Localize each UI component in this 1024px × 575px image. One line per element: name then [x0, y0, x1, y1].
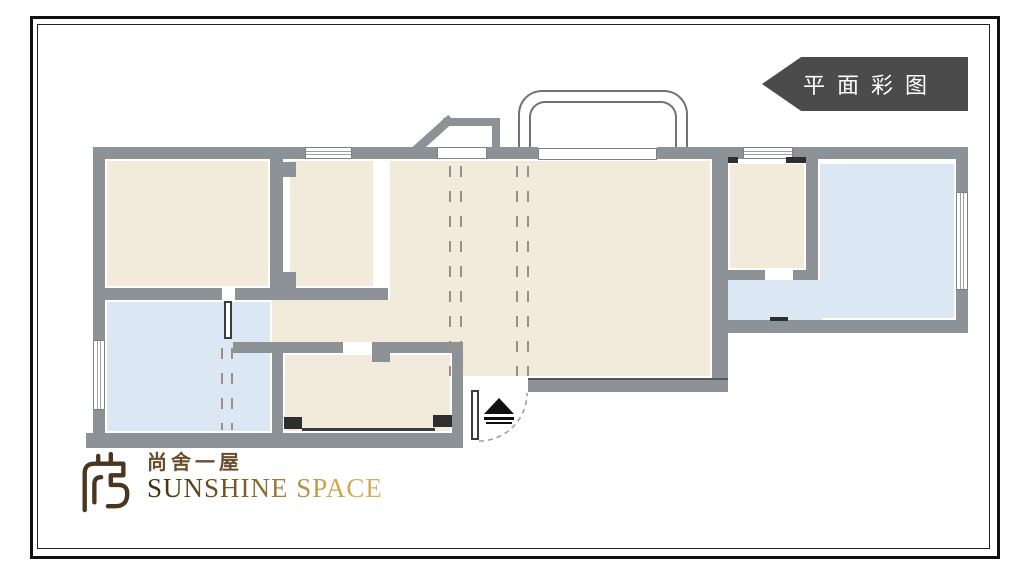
window: [437, 147, 487, 159]
room-bathroom-right: [818, 162, 956, 320]
wall-segment: [728, 270, 765, 280]
fixture-mark: [433, 415, 452, 427]
partition-dash-line: [231, 348, 233, 430]
partition-dash-line: [221, 348, 223, 430]
window: [956, 192, 968, 290]
door-leaf-hallway: [224, 301, 232, 339]
wall-segment: [806, 159, 818, 280]
fixture-mark: [284, 417, 302, 429]
wall-segment: [793, 270, 806, 280]
fixture-mark: [770, 317, 788, 321]
logo-title-cn: 尚舍一屋: [147, 452, 383, 474]
wall-segment: [233, 342, 343, 353]
wall-segment: [270, 159, 283, 288]
wall-segment: [487, 147, 538, 159]
wall-segment: [93, 147, 105, 340]
wall-segment: [528, 378, 728, 392]
logo: 尚舍一屋 SUNSHINE SPACE: [76, 452, 383, 514]
lintel-mark: [786, 157, 806, 163]
wall-segment: [283, 162, 296, 177]
entrance-marker-line: [486, 422, 512, 424]
wall-segment: [956, 147, 968, 195]
room-bottom-left: [105, 300, 272, 433]
partition-dash-line: [516, 166, 518, 376]
logo-house-icon: [76, 452, 134, 514]
wall-segment: [372, 353, 390, 362]
baseboard-line: [302, 428, 435, 431]
partition-dash-line: [460, 166, 462, 376]
wall-segment: [793, 147, 956, 159]
wall-segment: [718, 320, 968, 333]
stamp-label: 平面彩图: [791, 68, 939, 100]
room-bedroom-top-left: [105, 159, 270, 288]
wall-segment: [283, 272, 296, 288]
window: [305, 147, 352, 159]
wall-segment: [352, 147, 437, 159]
logo-text-block: 尚舍一屋 SUNSHINE SPACE: [147, 452, 383, 504]
partition-dash-line: [527, 166, 529, 376]
entrance-marker-line: [484, 417, 514, 420]
entrance-marker-icon: [484, 398, 514, 414]
wall-segment: [93, 147, 305, 159]
room-bedroom-second: [288, 159, 375, 288]
wall-segment: [93, 288, 222, 300]
window: [538, 148, 657, 160]
wall-segment: [235, 288, 388, 300]
window: [93, 340, 105, 410]
stamp-banner: 平面彩图: [762, 57, 968, 111]
room-bathroom-right-arm: [728, 280, 822, 320]
lintel-mark: [728, 157, 738, 163]
partition-dash-line: [449, 166, 451, 376]
room-bottom-middle: [283, 353, 452, 433]
logo-wordmark: SUNSHINE SPACE: [147, 474, 383, 504]
room-top-right: [728, 162, 806, 270]
wall-segment: [272, 342, 283, 448]
wall-segment: [712, 159, 728, 392]
